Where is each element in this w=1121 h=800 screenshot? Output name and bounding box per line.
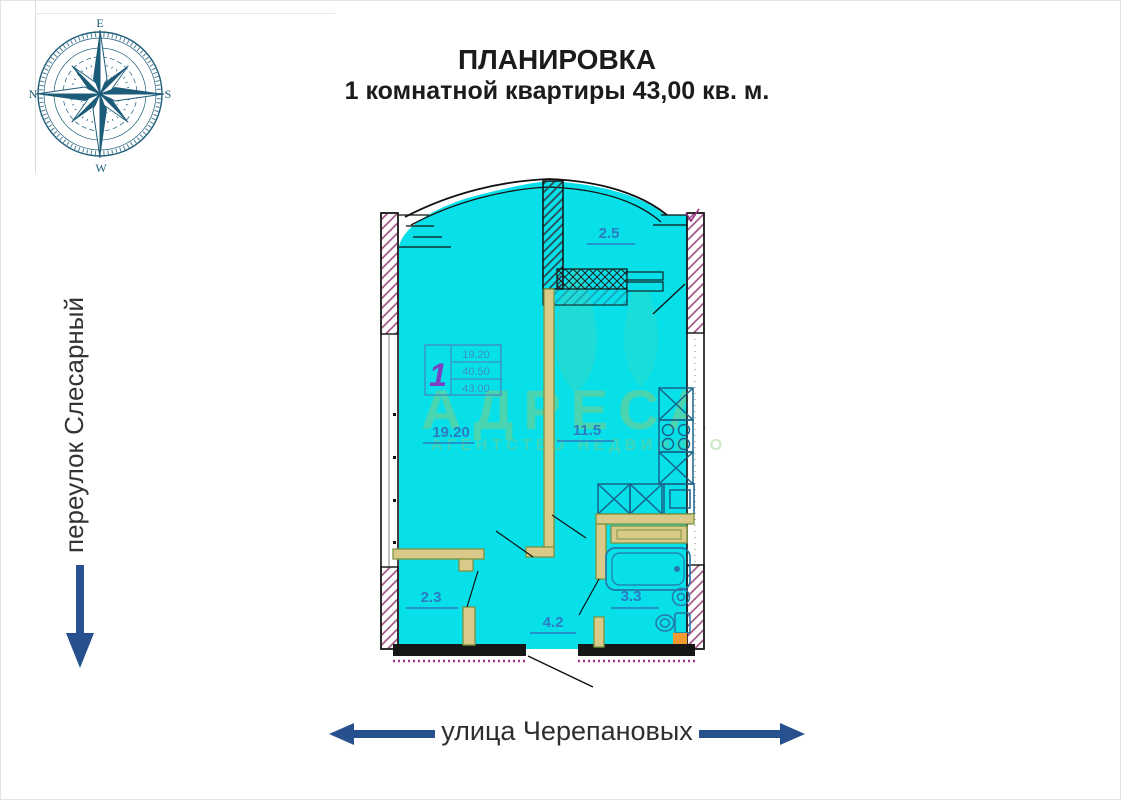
room-area-bathroom: 3.3 [621,588,642,605]
frame-line-horizontal [35,13,335,14]
compass-star [36,30,164,158]
street-bottom-text: улица Черепановых [441,716,693,746]
street-left-text: переулок Слесарный [59,297,90,553]
compass-east-label: E [96,17,103,30]
compass-south-label: S [165,87,172,101]
floor-plan-page: E S W N ПЛАНИРОВКА 1 комнатной квартиры … [0,0,1121,800]
street-arrow-down-icon [65,565,95,670]
table-row-area: 40.50 [462,366,490,378]
bathroom-cabinet [611,526,687,543]
compass-north-label: N [29,87,38,101]
compass-rose: E S W N [27,17,177,177]
room-area-kitchen: 11.5 [573,422,601,439]
page-title: ПЛАНИРОВКА 1 комнатной квартиры 43,00 кв… [257,45,857,107]
room-area-wardrobe: 2.3 [421,589,442,606]
table-row-living: 19.20 [462,349,490,361]
room-area-balcony: 2.5 [599,225,620,242]
room-area-living: 19.20 [432,424,470,441]
street-arrow-right-icon [699,723,805,745]
wall-left [381,213,398,649]
title-line-1: ПЛАНИРОВКА [257,45,857,76]
title-line-2: 1 комнатной квартиры 43,00 кв. м. [257,76,857,107]
compass-west-label: W [95,161,107,175]
street-label-bottom: улица Черепановых [437,716,697,747]
street-label-left: переулок Слесарный [53,283,95,568]
balcony-window [627,272,663,280]
accent-orange-box [673,633,687,644]
unit-number: 1 [429,357,447,393]
table-row-total: 43.00 [462,383,490,395]
street-arrow-left-icon [329,723,435,745]
floor-plan: АДРЕСА АГЕНТСТВО НЕДВИЖИМОСТИ [356,161,726,706]
room-area-hallway: 4.2 [543,614,564,631]
wall-bottom [393,644,695,687]
